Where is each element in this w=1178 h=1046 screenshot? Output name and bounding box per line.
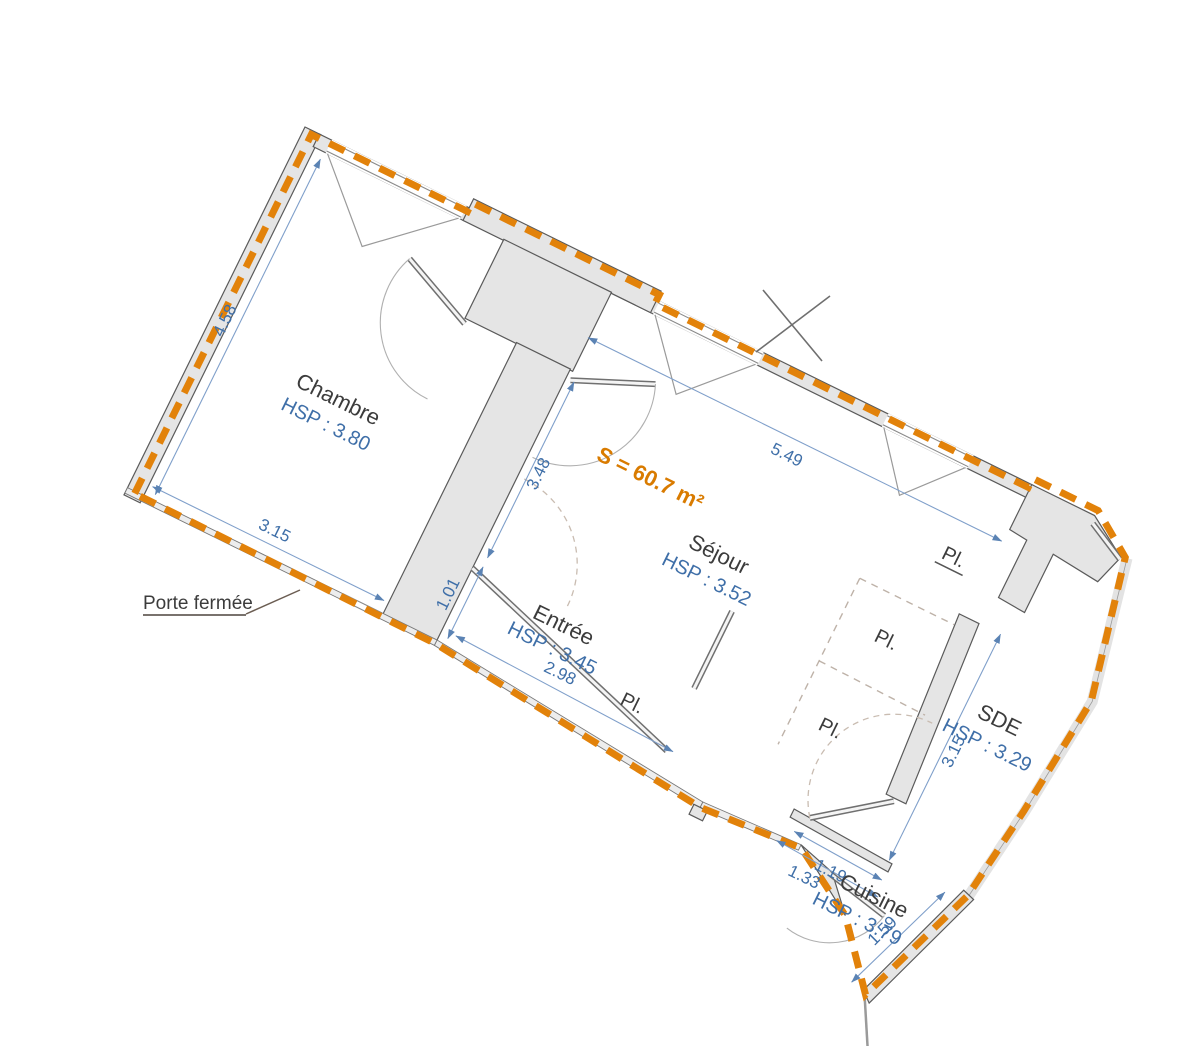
floorplan-canvas: 4.58 3.15 3.48 5.49 1.01 2.98 3.15 1.19 … xyxy=(0,0,1178,1046)
floorplan-page: 4.58 3.15 3.48 5.49 1.01 2.98 3.15 1.19 … xyxy=(0,0,1178,1046)
background xyxy=(0,0,1178,1046)
closed-door-note-text: Porte fermée xyxy=(143,593,253,614)
